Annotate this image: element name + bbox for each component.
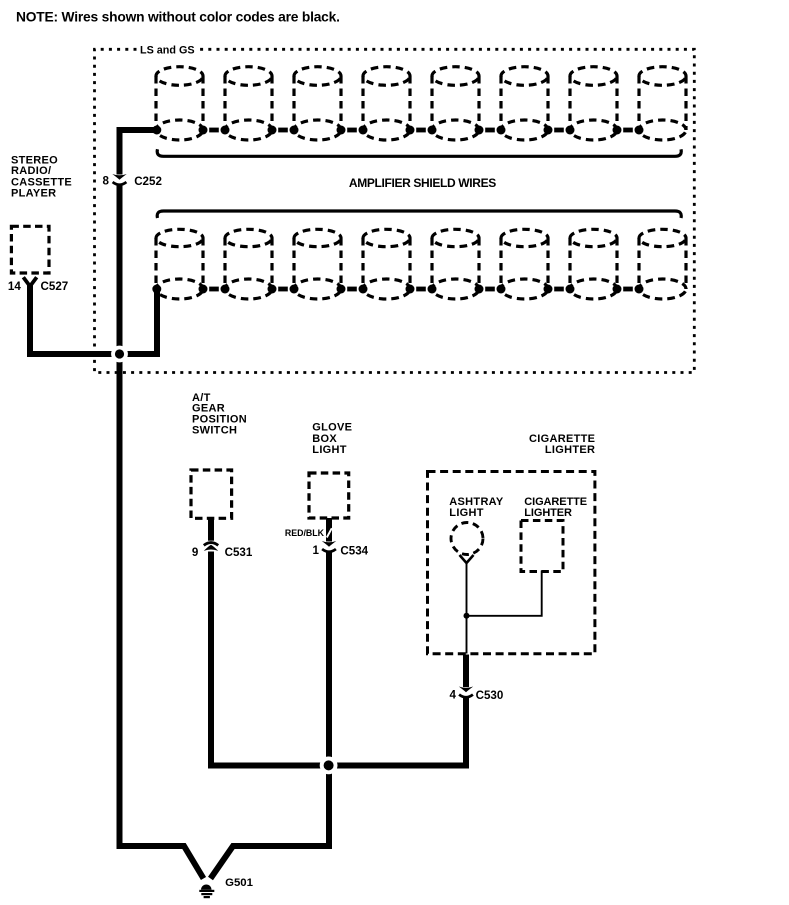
svg-text:SWITCH: SWITCH [192, 424, 237, 436]
svg-text:LIGHTER: LIGHTER [524, 507, 572, 519]
svg-text:LS and GS: LS and GS [140, 44, 195, 56]
svg-text:LIGHT: LIGHT [312, 444, 347, 456]
svg-text:LIGHT: LIGHT [449, 507, 484, 519]
svg-text:1: 1 [313, 544, 320, 557]
svg-text:14: 14 [8, 280, 21, 293]
svg-text:8: 8 [103, 175, 110, 188]
svg-text:9: 9 [192, 546, 199, 559]
svg-text:G501: G501 [225, 877, 254, 889]
svg-text:BOX: BOX [312, 433, 337, 445]
svg-text:PLAYER: PLAYER [11, 188, 56, 200]
svg-text:C534: C534 [340, 545, 368, 558]
svg-text:LIGHTER: LIGHTER [545, 444, 595, 456]
svg-text:C527: C527 [41, 280, 69, 293]
svg-text:NOTE: Wires shown without colo: NOTE: Wires shown without color codes ar… [16, 10, 340, 25]
svg-text:RED/BLK: RED/BLK [285, 528, 325, 538]
svg-text:C252: C252 [134, 175, 162, 188]
svg-text:C530: C530 [476, 689, 504, 702]
svg-text:C531: C531 [225, 546, 253, 559]
svg-text:RADIO/: RADIO/ [11, 165, 51, 177]
svg-text:GLOVE: GLOVE [312, 422, 352, 434]
svg-text:4: 4 [450, 688, 457, 701]
svg-text:AMPLIFIER SHIELD WIRES: AMPLIFIER SHIELD WIRES [349, 176, 496, 190]
